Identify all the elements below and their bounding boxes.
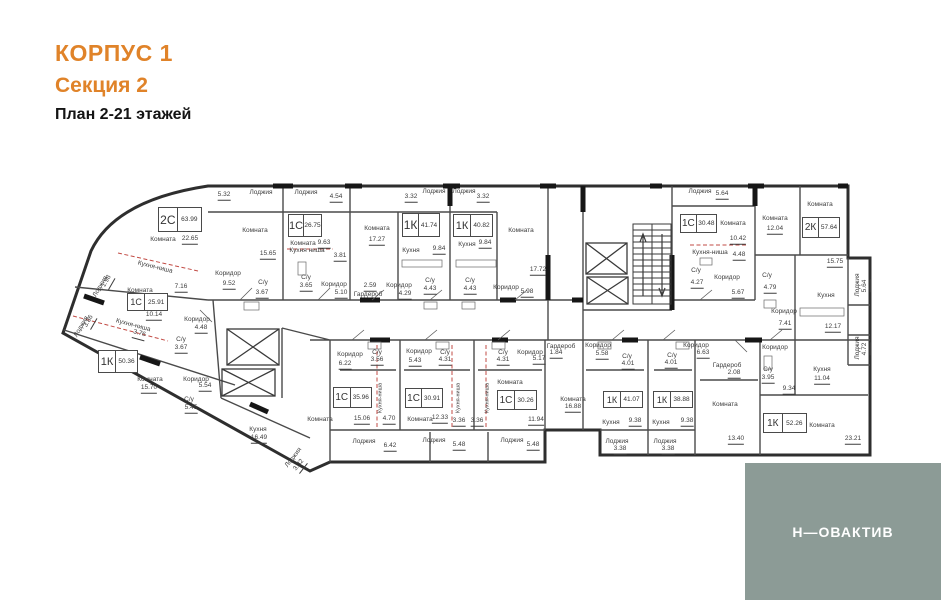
area-value: 22.65 xyxy=(182,236,198,245)
room-label: Коридор xyxy=(321,282,347,289)
room-label: Кухня xyxy=(602,420,619,427)
room-label: Комната xyxy=(127,288,152,295)
area-value: 5.64 xyxy=(862,280,871,293)
area-value: 3.32 xyxy=(477,194,490,203)
room-label: Кухня-ниша xyxy=(692,250,728,257)
area-value: 11.04 xyxy=(814,376,830,385)
area-value: 5.54 xyxy=(199,383,212,392)
area-value: 6.22 xyxy=(339,361,352,370)
room-label: Лоджия xyxy=(352,439,375,446)
area-value: 5.17 xyxy=(533,356,546,365)
area-value: 3.36 xyxy=(453,418,466,427)
room-label: Комната xyxy=(807,202,832,209)
area-value: 4.72 xyxy=(862,343,871,356)
room-label: Коридор xyxy=(762,345,788,352)
area-value: 12.33 xyxy=(432,415,448,424)
area-value: 9.34 xyxy=(783,386,796,395)
room-label: Кухня xyxy=(249,427,266,434)
room-label: Кухня-ниша xyxy=(378,383,384,413)
room-label: Лоджия xyxy=(452,189,475,196)
area-value: 11.94 xyxy=(528,417,544,426)
area-value: 16.49 xyxy=(251,435,267,444)
area-value: 9.84 xyxy=(479,240,492,249)
room-label: Лоджия xyxy=(422,438,445,445)
area-value: 5.58 xyxy=(596,351,609,360)
room-label: Кухня-ниша xyxy=(137,261,173,276)
room-label: Коридор xyxy=(386,283,412,290)
room-label: Гардероб xyxy=(354,292,383,299)
area-value: 3.38 xyxy=(614,446,627,455)
area-value: 4.43 xyxy=(424,286,437,295)
area-value: 6.42 xyxy=(384,443,397,452)
area-value: 12.17 xyxy=(825,324,841,333)
room-label: С/у xyxy=(176,337,186,344)
room-label: Комната xyxy=(497,380,522,387)
area-value: 4.48 xyxy=(195,325,208,334)
area-value: 10.14 xyxy=(146,312,162,321)
area-value: 12.04 xyxy=(767,226,783,235)
room-label: Коридор xyxy=(184,317,210,324)
room-label: Комната xyxy=(307,417,332,424)
area-value: 3.76 xyxy=(132,329,146,340)
area-value: 9.38 xyxy=(629,418,642,427)
room-label: Комната xyxy=(508,228,533,235)
area-value: 4.01 xyxy=(622,361,635,370)
area-value: 5.48 xyxy=(527,442,540,451)
room-label: Лоджия xyxy=(500,438,523,445)
room-label: Комната xyxy=(720,221,745,228)
area-value: 4.31 xyxy=(497,357,510,366)
area-value: 3.38 xyxy=(662,446,675,455)
plan-header: КОРПУС 1 Секция 2 План 2-21 этажей xyxy=(55,40,191,124)
room-label: Комната xyxy=(762,216,787,223)
room-label: Кухня xyxy=(458,242,475,249)
room-label: С/у xyxy=(762,273,772,280)
area-value: 4.70 xyxy=(383,416,396,425)
room-label: Коридор xyxy=(337,352,363,359)
area-value: 4.01 xyxy=(665,360,678,369)
room-label: Коридор xyxy=(215,271,241,278)
area-value: 3.81 xyxy=(334,253,347,262)
area-value: 6.63 xyxy=(697,350,710,359)
area-value: 7.41 xyxy=(779,321,792,330)
room-label: С/у xyxy=(184,397,194,404)
area-value: 17.72 xyxy=(530,267,546,276)
room-label: Коридор xyxy=(585,343,611,350)
room-label: Кухня-ниша xyxy=(485,383,491,413)
room-label: С/у xyxy=(301,275,311,282)
developer-logo: Н—ОВАКТИВ xyxy=(745,463,941,600)
area-value: 5.64 xyxy=(716,191,729,200)
area-value: 3.65 xyxy=(300,283,313,292)
area-value: 7.16 xyxy=(175,284,188,293)
area-value: 4.54 xyxy=(330,194,343,203)
room-label: С/у xyxy=(425,278,435,285)
room-label: Комната xyxy=(242,228,267,235)
developer-logo-text: Н—ОВАКТИВ xyxy=(792,524,893,540)
room-label: Коридор xyxy=(406,349,432,356)
room-label: Комната xyxy=(407,417,432,424)
area-value: 15.70 xyxy=(141,385,157,394)
room-label: С/у xyxy=(258,280,268,287)
plan-title: План 2-21 этажей xyxy=(55,106,191,124)
area-value: 13.40 xyxy=(728,436,744,445)
area-value: 3.32 xyxy=(405,194,418,203)
area-value: 15.06 xyxy=(354,416,370,425)
room-label: Кухня ниша xyxy=(289,248,324,255)
area-value: 3.36 xyxy=(471,418,484,427)
area-value: 5.32 xyxy=(218,192,231,201)
area-value: 1.84 xyxy=(550,350,563,359)
area-value: 5.43 xyxy=(409,358,422,367)
area-value: 4.48 xyxy=(733,252,746,261)
room-label: Коридор xyxy=(493,285,519,292)
room-label: Лоджия xyxy=(422,189,445,196)
area-value: 5.98 xyxy=(521,289,534,298)
area-value: 9.84 xyxy=(433,246,446,255)
area-value: 15.65 xyxy=(260,251,276,260)
area-value: 10.42 xyxy=(730,236,746,245)
area-value: 16.88 xyxy=(565,404,581,413)
building-title: КОРПУС 1 xyxy=(55,40,191,67)
room-label: Коридор xyxy=(714,275,740,282)
room-label: Комната xyxy=(150,237,175,244)
room-label: Комната xyxy=(364,226,389,233)
area-value: 3.95 xyxy=(762,375,775,384)
room-label: С/у xyxy=(691,268,701,275)
area-value: 4.27 xyxy=(691,280,704,289)
section-title: Секция 2 xyxy=(55,74,191,98)
room-label: Коридор xyxy=(771,309,797,316)
room-label: Лоджия xyxy=(249,190,272,197)
area-value: 4.31 xyxy=(439,357,452,366)
area-value: 3.56 xyxy=(371,357,384,366)
area-value: 5.48 xyxy=(453,442,466,451)
area-value: 2.08 xyxy=(728,370,741,379)
room-label: Кухня xyxy=(402,248,419,255)
area-value: 5.67 xyxy=(732,290,745,299)
area-value: 17.27 xyxy=(369,237,385,246)
room-label: Лоджия xyxy=(688,189,711,196)
room-label: Комната xyxy=(137,377,162,384)
area-value: 23.21 xyxy=(845,436,861,445)
room-label: Кухня xyxy=(652,420,669,427)
area-value: 5.10 xyxy=(335,290,348,299)
area-value: 9.38 xyxy=(681,418,694,427)
area-value: 3.67 xyxy=(256,290,269,299)
room-label: Комната xyxy=(712,402,737,409)
room-label: Кухня-ниша xyxy=(456,383,462,413)
area-value: 5.45 xyxy=(185,405,198,414)
area-value: 4.29 xyxy=(399,291,412,300)
area-value: 15.75 xyxy=(827,259,843,268)
room-label: С/у xyxy=(763,367,773,374)
area-value: 4.79 xyxy=(764,285,777,294)
room-label: С/у xyxy=(465,278,475,285)
area-value: 9.52 xyxy=(223,281,236,290)
room-label: Кухня xyxy=(817,293,834,300)
room-label: Лоджия xyxy=(294,190,317,197)
room-label: Комната xyxy=(809,423,834,430)
floor-plan-page: КОРПУС 1 Секция 2 План 2-21 этажей xyxy=(0,0,941,600)
area-value: 3.67 xyxy=(175,345,188,354)
room-label: Кухня xyxy=(813,367,830,374)
area-value: 4.43 xyxy=(464,286,477,295)
